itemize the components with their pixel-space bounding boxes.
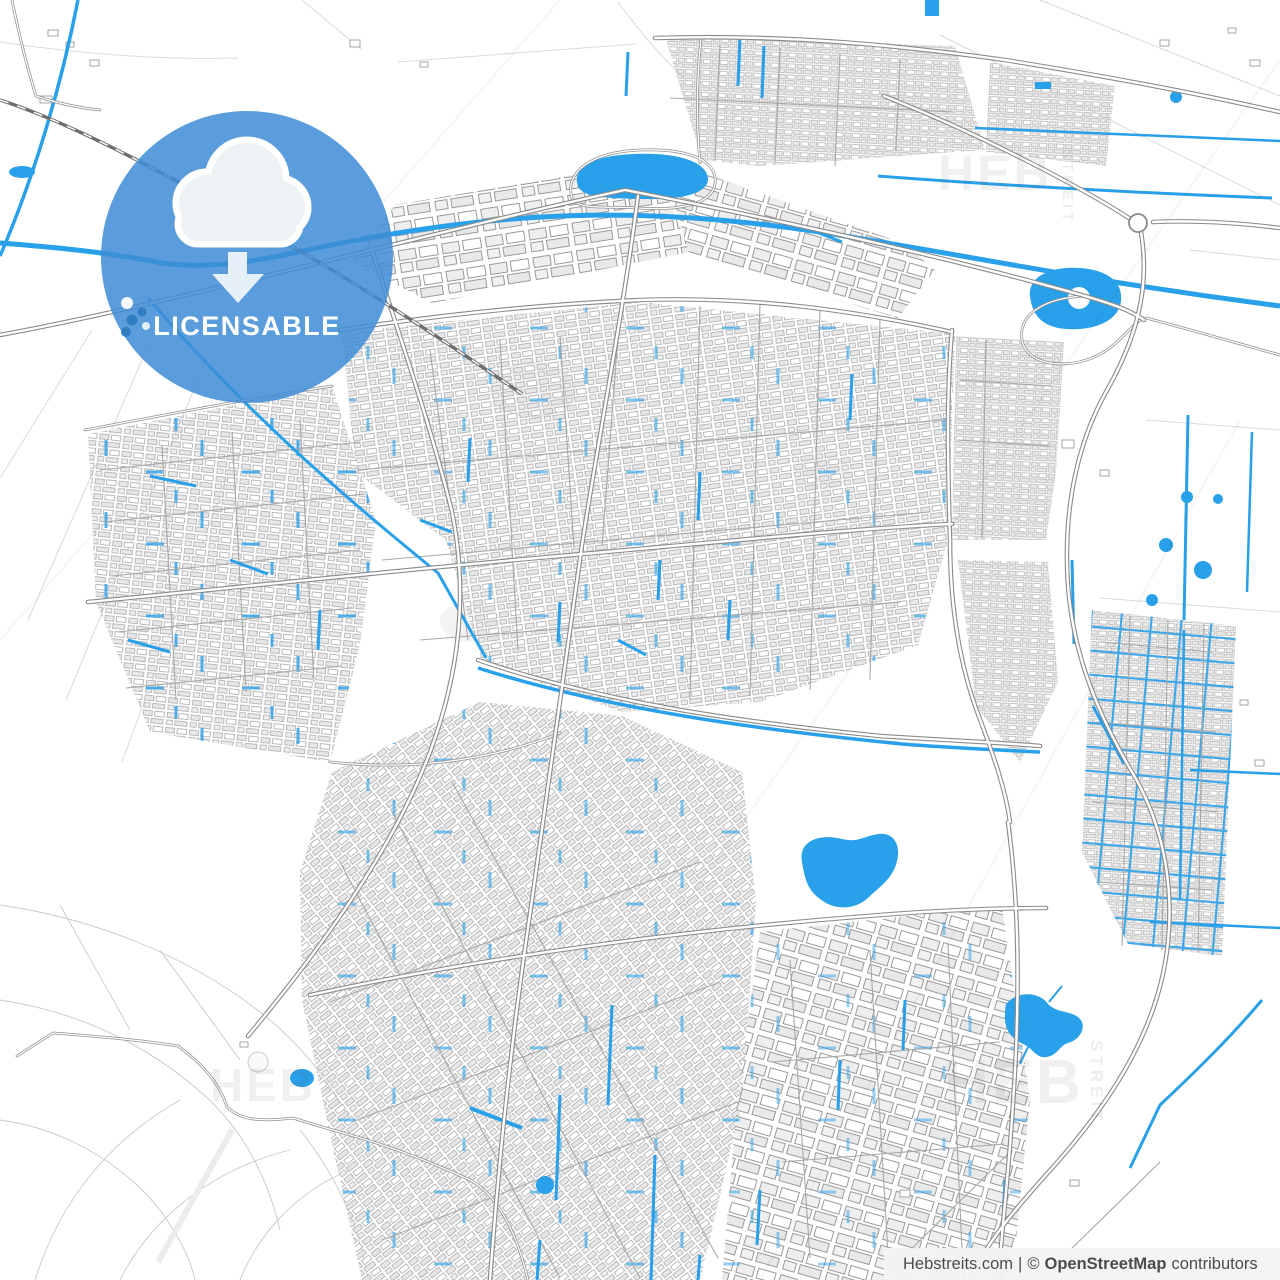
watermark-streit-bottom-right: STREIT <box>1088 1040 1105 1124</box>
attribution-copyright: © <box>1027 1255 1039 1274</box>
cloud-download-icon <box>101 111 393 403</box>
roundabout <box>1129 214 1147 232</box>
watermark-heb-top-right: HEB <box>938 148 1053 198</box>
badge-label: LICENSABLE <box>101 311 393 342</box>
watermark-streit-top-right: STREIT <box>1060 148 1075 225</box>
download-arrow-icon <box>212 252 264 303</box>
attribution-suffix: contributors <box>1171 1255 1257 1274</box>
watermark-heb-bottom-left: HEB <box>210 1062 316 1108</box>
attribution-owner: OpenStreetMap <box>1045 1255 1167 1274</box>
attribution-bar: Hebstreits.com | © OpenStreetMap contrib… <box>884 1248 1280 1280</box>
runway-stripe <box>158 1130 232 1262</box>
watermark-heb-bottom-right: HEB <box>944 1052 1084 1114</box>
licensable-badge[interactable]: LICENSABLE <box>101 111 393 403</box>
attribution-source: Hebstreits.com <box>903 1255 1013 1274</box>
map-canvas: HEB STREIT HEB HEB STREIT <box>0 0 1280 1280</box>
attribution-separator: | <box>1018 1255 1022 1274</box>
